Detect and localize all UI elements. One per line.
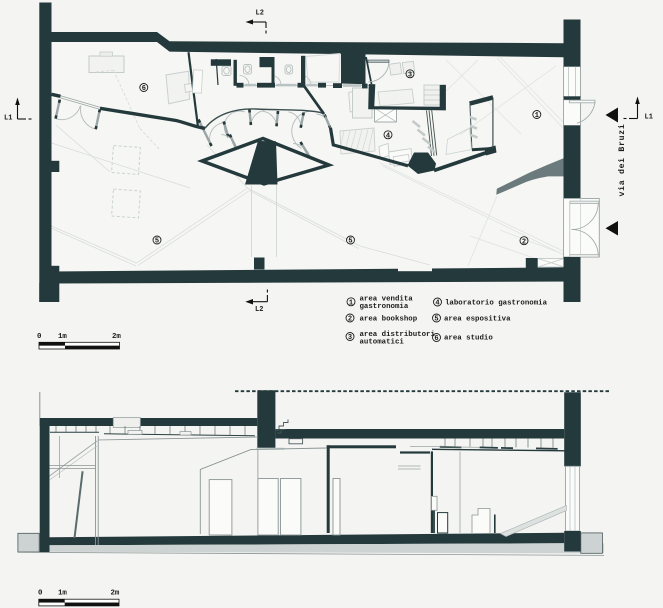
svg-text:area bookshop: area bookshop <box>360 316 418 324</box>
svg-text:laboratorio gastronomia: laboratorio gastronomia <box>445 300 548 308</box>
svg-text:6: 6 <box>434 335 438 343</box>
svg-text:0: 0 <box>38 590 43 598</box>
svg-text:3: 3 <box>348 334 352 342</box>
svg-text:4: 4 <box>435 300 439 308</box>
svg-text:L1: L1 <box>4 115 12 123</box>
svg-text:L1: L1 <box>645 114 653 122</box>
svg-text:2m: 2m <box>111 590 120 598</box>
svg-text:0: 0 <box>37 333 42 341</box>
svg-text:1m: 1m <box>58 590 67 598</box>
svg-text:2m: 2m <box>112 333 121 341</box>
svg-text:4: 4 <box>386 133 390 141</box>
svg-text:3: 3 <box>408 72 412 80</box>
svg-text:1: 1 <box>349 300 353 308</box>
svg-text:6: 6 <box>142 85 146 93</box>
svg-text:L2: L2 <box>255 306 263 314</box>
svg-text:5: 5 <box>155 238 159 246</box>
svg-text:1m: 1m <box>58 333 67 341</box>
svg-text:area espositiva: area espositiva <box>444 316 511 324</box>
svg-text:via dei Bruzi: via dei Bruzi <box>617 124 627 197</box>
svg-text:gastronomia: gastronomia <box>360 303 409 311</box>
svg-text:automatici: automatici <box>360 339 405 347</box>
svg-text:1: 1 <box>535 112 539 120</box>
svg-text:2: 2 <box>522 238 526 246</box>
svg-text:5: 5 <box>434 316 438 324</box>
svg-text:area studio: area studio <box>444 335 493 343</box>
svg-text:5: 5 <box>348 238 352 246</box>
svg-text:L2: L2 <box>256 10 264 18</box>
svg-text:2: 2 <box>348 316 352 324</box>
